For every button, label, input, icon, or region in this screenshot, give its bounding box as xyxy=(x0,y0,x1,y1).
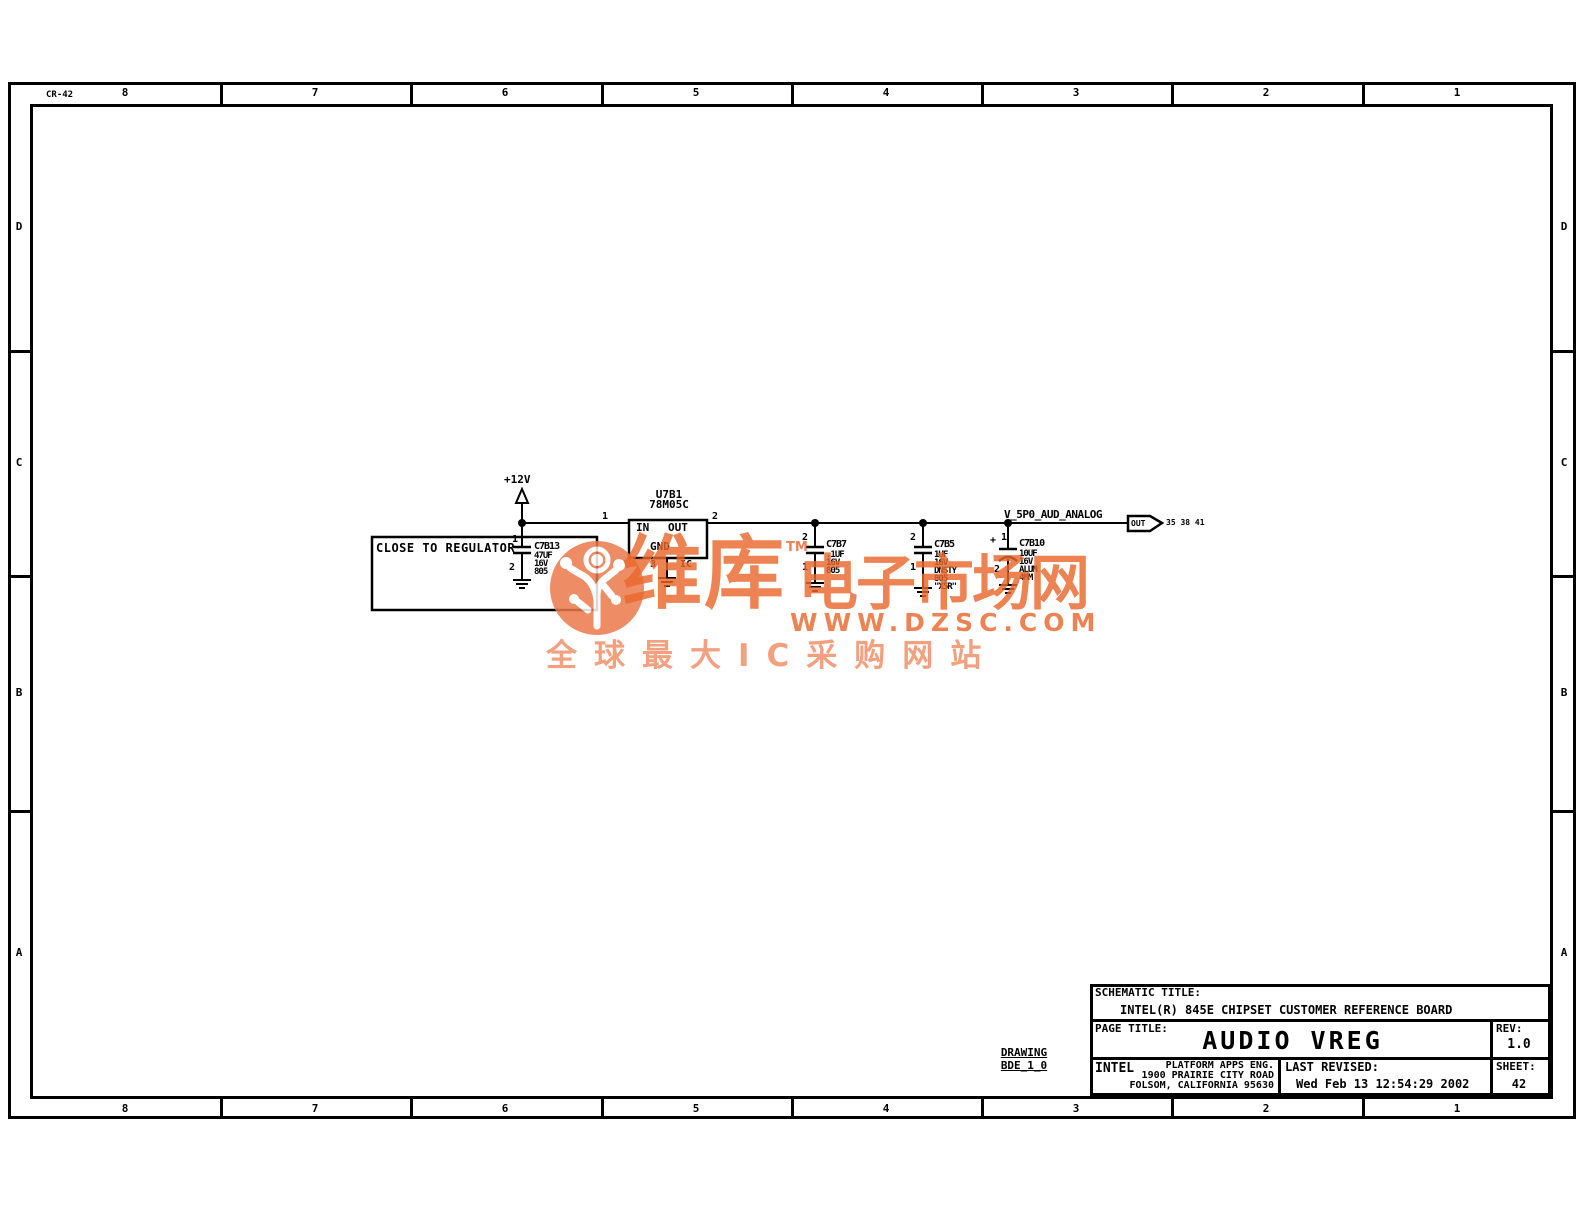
drawing-number: BDE_1_0 xyxy=(996,1059,1052,1072)
cap-refdes: C7B10 xyxy=(1019,539,1044,549)
rev-value: 1.0 xyxy=(1493,1037,1545,1052)
page-title: AUDIO VREG xyxy=(1095,1026,1490,1055)
power-net-label: +12V xyxy=(504,474,531,485)
power-arrow-icon xyxy=(516,489,528,503)
company-address2: FOLSOM, CALIFORNIA 95630 xyxy=(1120,1081,1274,1091)
watermark-brand: 维库 xyxy=(622,534,786,614)
pin-number: 1 xyxy=(512,535,518,545)
pin-number: 2 xyxy=(712,512,718,522)
pin-number: 1 xyxy=(602,512,608,522)
polarity-plus: + xyxy=(990,536,996,546)
pin-number: 1 xyxy=(1001,533,1007,543)
schematic-sheet: CR-42 8 7 6 5 4 3 2 1 8 7 6 5 4 3 2 1 D … xyxy=(0,0,1584,1223)
sheet-number: 42 xyxy=(1493,1077,1545,1091)
last-revised-value: Wed Feb 13 12:54:29 2002 xyxy=(1296,1077,1469,1091)
company-name: INTEL xyxy=(1095,1061,1134,1076)
last-revised-label: LAST REVISED: xyxy=(1285,1060,1379,1074)
close-to-regulator-note: CLOSE TO REGULATOR xyxy=(376,541,515,555)
regulator-part-number: 78M05C xyxy=(641,499,697,510)
watermark-brand2: 电子市场网 xyxy=(798,553,1088,615)
pin-number: 2 xyxy=(910,533,916,543)
rev-label: REV: xyxy=(1496,1022,1523,1035)
schematic-title-label: SCHEMATIC TITLE: xyxy=(1095,986,1201,999)
schematic-title: INTEL(R) 845E CHIPSET CUSTOMER REFERENCE… xyxy=(1120,1003,1452,1017)
drawing-label: DRAWING xyxy=(996,1046,1052,1059)
sheet-refs: 35 38 41 xyxy=(1166,519,1205,527)
out-tag-label: OUT xyxy=(1131,520,1145,528)
sheet-label: SHEET: xyxy=(1496,1060,1536,1073)
output-net-label: V_5P0_AUD_ANALOG xyxy=(1004,509,1102,520)
watermark-tagline: 全球最大IC采购网站 xyxy=(546,630,998,675)
title-block-divider xyxy=(1278,1057,1281,1096)
pin-number: 2 xyxy=(509,563,515,573)
cap-values: 47UF 16V 805 xyxy=(534,552,552,576)
